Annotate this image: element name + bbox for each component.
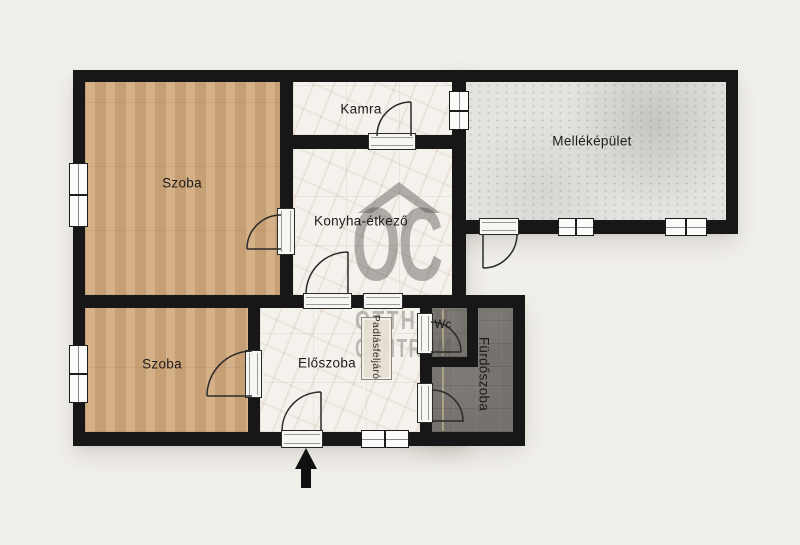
window-outbuilding-2 (665, 218, 707, 236)
wall-outbuilding-right (726, 70, 738, 234)
door-sill-konyha-eloszoba (303, 293, 352, 309)
floor-plan-canvas: OC OTTHON CENTRUM (0, 0, 800, 545)
door-sill-wc (417, 313, 433, 354)
window-szoba-top-left (69, 163, 88, 227)
opening-sill-attic (363, 293, 403, 309)
room-label-furdoszoba: Fürdőszoba (477, 337, 492, 411)
wall-bathroom-right (513, 297, 525, 442)
door-sill-entrance (281, 430, 323, 448)
room-label-szoba-top: Szoba (162, 176, 202, 191)
door-sill-outbuilding (479, 218, 519, 235)
window-eloszoba-bottom (361, 430, 409, 448)
room-label-eloszoba: Előszoba (298, 356, 356, 371)
room-label-konyha-etkezo: Konyha-étkező (314, 214, 408, 229)
window-outbuilding-1 (558, 218, 594, 236)
entrance-arrow-icon (295, 448, 317, 488)
door-sill-szoba-top (277, 208, 295, 255)
room-floor-mellekepulet (466, 82, 726, 220)
door-sill-furdoszoba (417, 383, 433, 423)
window-szoba-bottom-left (69, 345, 88, 403)
room-label-kamra: Kamra (340, 102, 381, 117)
wall-top (73, 70, 738, 82)
attic-access-label: Padlásfeljáró (370, 315, 382, 380)
wall-middle-horizontal (73, 295, 525, 308)
door-arc-outbuilding (483, 234, 517, 268)
room-label-mellekepulet: Melléképület (552, 134, 631, 149)
wall-szoba-kitchen-divider (280, 82, 293, 308)
room-label-szoba-bottom: Szoba (142, 357, 182, 372)
room-label-wc: Wc (434, 319, 451, 331)
door-sill-szoba-bottom (245, 350, 262, 398)
bathroom-tile-seam (442, 367, 444, 431)
watermark-logo: OC (352, 193, 441, 297)
door-sill-kamra (368, 133, 416, 150)
window-kamra-right (449, 91, 469, 130)
wall-wc-bottom (420, 357, 478, 367)
